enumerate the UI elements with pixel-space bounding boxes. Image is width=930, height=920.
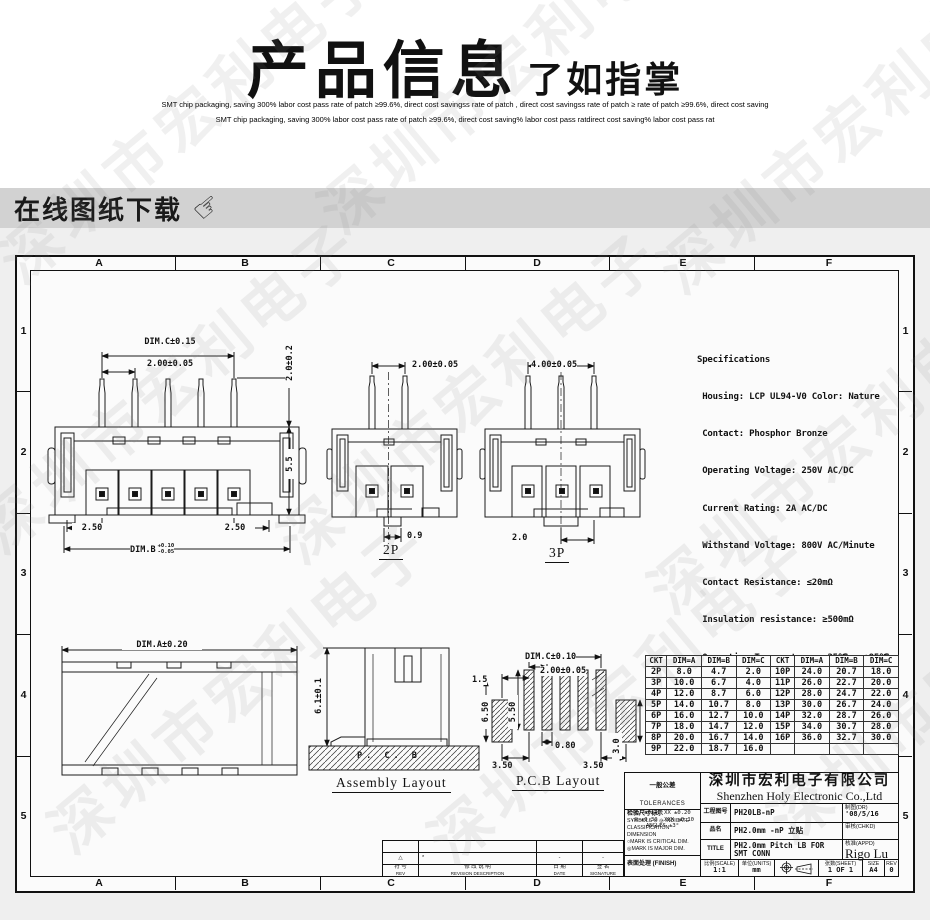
- 2p-caption: 2P: [379, 542, 403, 560]
- dim-assembly-top: DIM.A±0.20: [122, 640, 202, 650]
- dim-front-pin-height: 2.0±0.2: [285, 338, 295, 388]
- spec-line: Insulation resistance: ≥500mΩ: [697, 614, 917, 626]
- zone-number: 5: [899, 810, 912, 823]
- 2p-view-drawing: [327, 354, 462, 554]
- pcb-layout-caption: P.C.B Layout: [512, 773, 604, 791]
- page-title-sub: 了如指掌: [527, 51, 683, 103]
- zone-tick: [465, 877, 466, 890]
- units-cell: 单位(UNITS) mm: [739, 860, 775, 876]
- rev-cell: REV 0: [885, 860, 898, 876]
- projection-cone-icon: [795, 864, 813, 874]
- zone-tick: [175, 257, 176, 270]
- dim-2p-slot: 0.9: [407, 531, 422, 541]
- chkd-cell: 审核(CHKD): [843, 823, 898, 839]
- zone-letter: A: [91, 877, 107, 890]
- inspection-line: CLASSIFICATION DIMENSION: [627, 825, 698, 839]
- table-header: DIM=A: [795, 656, 830, 667]
- zone-number: 4: [17, 689, 30, 702]
- zone-letter: E: [675, 877, 691, 890]
- drawing-no-value: PH20LB-nP: [731, 804, 843, 821]
- inspection-line: ◎MARK IS MAJOR DIM.: [627, 846, 698, 853]
- sheet-count-cell: 张数(SHEET) 1 OF 1: [819, 860, 863, 876]
- dim-pcb-span: DIM.C±0.10: [525, 652, 576, 662]
- dim-pcb-pitch: 2.00±0.05: [540, 666, 586, 676]
- zone-letter: F: [821, 257, 837, 270]
- rev-value: 0: [885, 867, 898, 873]
- zone-number: 2: [17, 446, 30, 459]
- title-value: PH2.0mm Pitch LB FOR SMT CONN: [731, 840, 843, 859]
- table-row: 8P20.016.714.016P36.032.730.0: [646, 732, 899, 743]
- zone-letter: A: [91, 257, 107, 270]
- title-row: TITLE PH2.0mm Pitch LB FOR SMT CONN 核准(A…: [701, 840, 898, 860]
- dim-front-body-height: 5.5: [285, 449, 295, 479]
- zone-tick: [17, 756, 30, 757]
- company-cell: 深圳市宏利电子有限公司 Shenzhen Holy Electronic Co.…: [701, 773, 898, 804]
- zone-tick: [175, 877, 176, 890]
- projection-cell: [775, 860, 819, 876]
- spec-line: Housing: LCP UL94-V0 Color: Nature: [697, 391, 917, 403]
- header-subtitle-2: SMT chip packaging, saving 300% labor co…: [0, 115, 930, 124]
- part-name-value: PH2.0mm -nP 立贴: [731, 823, 843, 839]
- drawing-no-label: 工程图号: [701, 804, 731, 821]
- revision-header-row: 符 号REV 修 改 说 明REVISION DESCRIPTION 日 期DA…: [383, 864, 623, 876]
- spec-line: Current Rating: 2A AC/DC: [697, 503, 917, 515]
- assembly-side-view-drawing: [307, 642, 482, 782]
- company-name-en: Shenzhen Holy Electronic Co.,Ltd: [701, 789, 898, 803]
- scale-cell: 比例(SCALE) 1:1: [701, 860, 739, 876]
- dim-pcb-550: 5.50: [508, 695, 518, 729]
- 3p-view-drawing: [480, 354, 660, 554]
- projection-circle-icon: [780, 861, 793, 874]
- revision-mark-row: △ * - -: [383, 852, 623, 864]
- specs-title: Specifications: [697, 354, 917, 366]
- company-name-cn: 深圳市宏利电子有限公司: [701, 773, 898, 789]
- header-subtitle-1: SMT chip packaging, saving 300% labor co…: [0, 100, 930, 109]
- title-label: TITLE: [701, 840, 731, 859]
- tolerances-cell: 一般公差 TOLERANCES X. ±0.40 XX ±0.20 .X ±0.…: [625, 773, 700, 810]
- inspection-line: ○MARK IS CRITICAL DIM.: [627, 839, 698, 846]
- title-block-left: 一般公差 TOLERANCES X. ±0.40 XX ±0.20 .X ±0.…: [625, 773, 701, 876]
- title-block: 一般公差 TOLERANCES X. ±0.40 XX ±0.20 .X ±0.…: [624, 772, 899, 877]
- pcb-board-label: P. C. B: [357, 751, 421, 761]
- title-block-right: 深圳市宏利电子有限公司 Shenzhen Holy Electronic Co.…: [701, 773, 898, 876]
- revision-date-note: -: [537, 853, 583, 864]
- dim-pcb-30: 3.0: [612, 733, 622, 759]
- zone-letter: D: [529, 257, 545, 270]
- zone-number: 4: [899, 689, 912, 702]
- part-name-row: 品名 PH2.0mm -nP 立贴 审核(CHKD): [701, 823, 898, 840]
- tolerances-cn: 一般公差: [650, 782, 676, 789]
- table-header: CKT: [771, 656, 795, 667]
- inspection-line: SYMBOLS ⊙ ◎ INDICATE: [627, 818, 698, 825]
- inspection-title: 检验尺寸标示: [627, 811, 698, 818]
- table-header: DIM=B: [701, 656, 736, 667]
- dim-front-top-span: DIM.C±0.15: [115, 337, 225, 347]
- dr-value: '08/5/16: [845, 811, 896, 817]
- zone-tick: [609, 257, 610, 270]
- zone-tick: [609, 877, 610, 890]
- zone-letter: B: [237, 877, 253, 890]
- zone-tick: [320, 257, 321, 270]
- dim-pcb-350l: 3.50: [492, 761, 512, 771]
- zone-letter: D: [529, 877, 545, 890]
- dim-pcb-350r: 3.50: [583, 761, 603, 771]
- table-row: 6P16.012.710.014P32.028.726.0: [646, 710, 899, 721]
- revision-col-signature: 签 名SIGNATURE: [583, 865, 623, 876]
- dim-front-left-offset: 2.50: [72, 523, 112, 533]
- zone-number: 2: [899, 446, 912, 459]
- dim-assembly-height: 6.1±0.1: [314, 671, 324, 721]
- zone-number: 3: [899, 567, 912, 580]
- spec-line: Withstand Voltage: 800V AC/Minute: [697, 540, 917, 552]
- revision-note: *: [419, 853, 537, 864]
- zone-number: 3: [17, 567, 30, 580]
- zone-letter: E: [675, 257, 691, 270]
- dim-3p-pitch: 2.0: [512, 533, 527, 543]
- zone-tick: [754, 877, 755, 890]
- page: 产品信息 了如指掌 SMT chip packaging, saving 300…: [0, 0, 930, 920]
- dr-cell: 制图(DR) '08/5/16: [843, 804, 898, 821]
- zone-tick: [899, 634, 912, 635]
- zone-tick: [465, 257, 466, 270]
- specifications-block: Specifications Housing: LCP UL94-V0 Colo…: [697, 329, 917, 689]
- zone-tick: [17, 391, 30, 392]
- revision-col-description: 修 改 说 明REVISION DESCRIPTION: [419, 865, 537, 876]
- size-cell: SIZE A4: [863, 860, 885, 876]
- drawing-no-row: 工程图号 PH20LB-nP 制图(DR) '08/5/16: [701, 804, 898, 822]
- zone-tick: [899, 756, 912, 757]
- zone-number: 1: [899, 325, 912, 338]
- dim-front-bottom-span: DIM.B+0.10-0.05: [130, 544, 174, 555]
- zone-tick: [17, 513, 30, 514]
- units-value: mm: [739, 867, 774, 873]
- download-bar-label: 在线图纸下载: [14, 190, 182, 227]
- revision-col-mark: 符 号REV: [383, 865, 419, 876]
- page-header: 产品信息 了如指掌: [0, 20, 930, 110]
- page-title: 产品信息: [247, 20, 519, 110]
- assembly-layout-caption: Assembly Layout: [332, 775, 451, 793]
- table-header: DIM=C: [864, 656, 899, 667]
- appd-cell: 核准(APPD) Rigo Lu: [843, 840, 898, 859]
- zone-tick: [754, 257, 755, 270]
- revision-empty-row: [383, 841, 623, 852]
- revision-strip: △ * - - 符 号REV 修 改 说 明REVISION DESCRIPTI…: [382, 840, 624, 877]
- dim-front-right-offset: 2.50: [215, 523, 255, 533]
- table-row: 5P14.010.78.013P30.026.724.0: [646, 699, 899, 710]
- zone-tick: [899, 513, 912, 514]
- zone-tick: [320, 877, 321, 890]
- zone-letter: C: [383, 877, 399, 890]
- dimension-table: CKTDIM=ADIM=BDIM=CCKTDIM=ADIM=BDIM=C2P8.…: [645, 655, 899, 755]
- zone-letter: F: [821, 877, 837, 890]
- title-block-bottom-row: 比例(SCALE) 1:1 单位(UNITS) mm: [701, 860, 898, 876]
- scale-value: 1:1: [701, 867, 738, 873]
- zone-tick: [17, 634, 30, 635]
- table-header: DIM=A: [667, 656, 702, 667]
- zone-letter: C: [383, 257, 399, 270]
- zone-tick: [899, 391, 912, 392]
- table-row: 3P10.06.74.011P26.022.720.0: [646, 677, 899, 688]
- download-drawing-bar[interactable]: 在线图纸下载 ☞: [0, 188, 930, 228]
- size-value: A4: [863, 867, 884, 873]
- revision-sig-note: -: [583, 853, 623, 864]
- dim-pcb-080: 0.80: [555, 741, 575, 751]
- zone-letter: B: [237, 257, 253, 270]
- zone-number: 5: [17, 810, 30, 823]
- revision-mark: △: [383, 853, 419, 864]
- dim-2p-pitch: 2.00±0.05: [412, 360, 458, 370]
- table-row: 9P22.018.716.0: [646, 743, 899, 754]
- table-header: DIM=B: [829, 656, 864, 667]
- revision-col-date: 日 期DATE: [537, 865, 583, 876]
- pointing-hand-icon: ☞: [188, 188, 228, 228]
- finish-cell: 表面处理 (FINISH): [625, 856, 700, 876]
- tolerances-en: TOLERANCES: [640, 801, 686, 807]
- table-row: 2P8.04.72.010P24.020.718.0: [646, 666, 899, 677]
- appd-signature: Rigo Lu: [845, 847, 896, 860]
- table-row: 4P12.08.76.012P28.024.722.0: [646, 688, 899, 699]
- drawing-sheet: DIM.C±0.15 2.00±0.05 2.0±0.2 5.5 2.50 2.…: [15, 255, 915, 893]
- dim-pcb-15: 1.5: [472, 675, 487, 685]
- table-header: CKT: [646, 656, 667, 667]
- assembly-top-view-drawing: [57, 642, 302, 782]
- table-header: DIM=C: [736, 656, 771, 667]
- dim-front-pitch: 2.00±0.05: [147, 359, 193, 369]
- table-row: 7P18.014.712.015P34.030.728.0: [646, 721, 899, 732]
- dim-3p-span: 4.00±0.05: [531, 360, 577, 370]
- sheet-count-value: 1 OF 1: [819, 867, 862, 873]
- spec-line: Operating Voltage: 250V AC/DC: [697, 465, 917, 477]
- part-label: 品名: [701, 823, 731, 839]
- inspection-cell: 检验尺寸标示 SYMBOLS ⊙ ◎ INDICATE CLASSIFICATI…: [625, 810, 700, 856]
- 3p-caption: 3P: [545, 545, 569, 563]
- spec-line: Contact: Phosphor Bronze: [697, 428, 917, 440]
- spec-line: Contact Resistance: ≤20mΩ: [697, 577, 917, 589]
- zone-number: 1: [17, 325, 30, 338]
- dim-pcb-650: 6.50: [481, 695, 491, 729]
